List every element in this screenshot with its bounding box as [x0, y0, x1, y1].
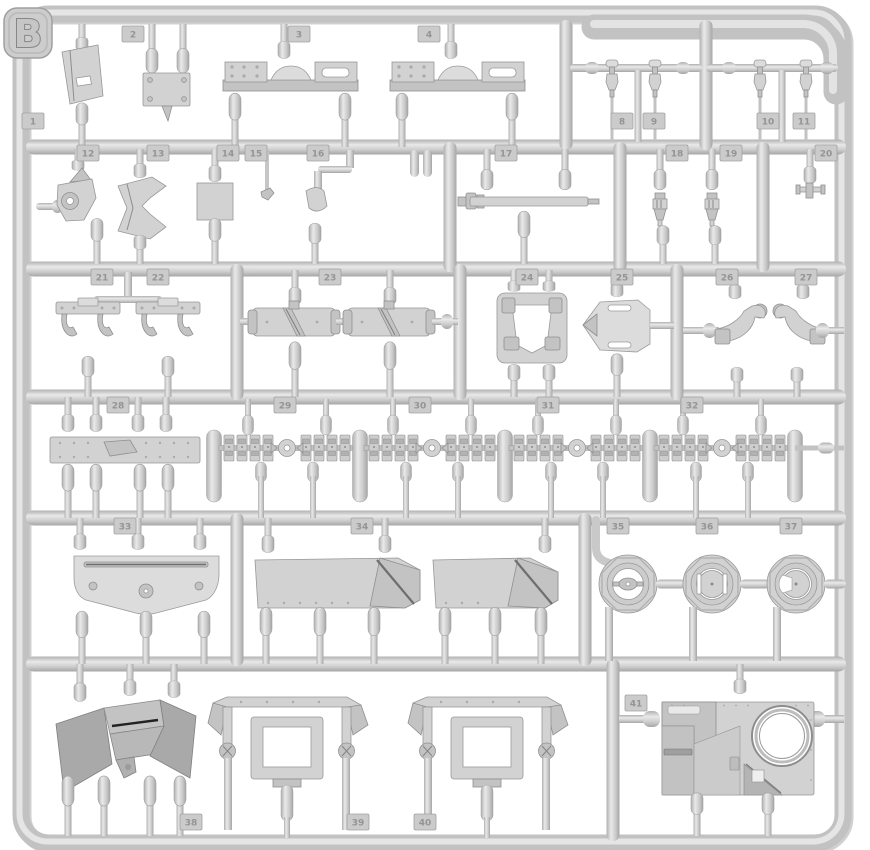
- spare-gate: [423, 150, 432, 177]
- track-link-runs: [207, 399, 845, 518]
- part-number-tab: 3: [288, 26, 310, 42]
- svg-text:17: 17: [500, 150, 513, 160]
- part-angle-clamp: [118, 149, 166, 264]
- svg-text:39: 39: [352, 819, 365, 829]
- part-fender-panel-1: [255, 518, 420, 664]
- svg-text:20: 20: [820, 150, 833, 160]
- part-hinge-brackets: [56, 272, 200, 397]
- svg-text:27: 27: [800, 274, 813, 284]
- part-lifting-hook: [649, 60, 661, 97]
- part-number-tab: 40: [414, 814, 436, 830]
- part-number-tab: 38: [180, 814, 202, 830]
- svg-text:4: 4: [426, 31, 432, 41]
- svg-text:21: 21: [96, 274, 109, 284]
- part-number-tab: 25: [611, 269, 633, 285]
- part-number-tab: 27: [795, 269, 817, 285]
- part-crane-brackets: [683, 270, 844, 397]
- part-seat-frame: [497, 270, 567, 397]
- sprue-letter: B: [14, 12, 43, 56]
- part-number-tab: 21: [91, 269, 113, 285]
- part-track-run: [654, 399, 790, 518]
- part-bolted-box: [143, 24, 190, 121]
- part-number-tab: 23: [319, 269, 341, 285]
- part-engine-mount-beam-1: [223, 62, 358, 91]
- svg-text:26: 26: [721, 274, 734, 284]
- part-number-tab: 9: [643, 113, 665, 129]
- hook-pin-cell-1: [570, 60, 702, 142]
- part-number-tab: 28: [107, 397, 129, 413]
- part-square-plate: [197, 149, 233, 264]
- part-round-hatch-2: [683, 555, 741, 613]
- part-mufflers: [240, 270, 458, 397]
- svg-text:1: 1: [30, 118, 36, 128]
- part-track-run: [509, 399, 645, 518]
- part-wheel-arch-1: [208, 697, 368, 838]
- part-lifting-hook: [800, 60, 812, 97]
- part-fender-strip: [50, 397, 200, 518]
- svg-text:24: 24: [521, 274, 534, 284]
- svg-text:41: 41: [630, 700, 643, 710]
- svg-text:3: 3: [296, 31, 302, 41]
- part-lifting-hook: [754, 60, 766, 97]
- part-number-tab: 37: [780, 518, 802, 534]
- part-number-tab: 35: [607, 518, 629, 534]
- part-angled-bracket-plate: [62, 24, 103, 147]
- part-periscope-1: [653, 149, 669, 264]
- sprue-frame-b: B 12348910111213141516171819202122232425…: [0, 0, 870, 850]
- part-rounded-lever: [306, 150, 354, 264]
- part-number-tab: 24: [516, 269, 538, 285]
- svg-text:33: 33: [119, 523, 132, 533]
- round-hatches: [596, 520, 846, 661]
- svg-text:31: 31: [542, 402, 555, 412]
- part-number-tab: 36: [696, 518, 718, 534]
- part-lifting-hook: [606, 60, 618, 97]
- part-number-tab: 30: [409, 397, 431, 413]
- part-number-tab: 31: [537, 397, 559, 413]
- svg-text:18: 18: [671, 150, 684, 160]
- part-number-tab: 19: [720, 145, 742, 161]
- part-number-tab: 12: [77, 145, 99, 161]
- svg-text:22: 22: [152, 274, 165, 284]
- part-periscope-2: [705, 149, 721, 264]
- svg-text:32: 32: [686, 402, 699, 412]
- svg-text:10: 10: [762, 118, 775, 128]
- part-round-hatch-1: [599, 555, 657, 613]
- part-number-tab: 15: [245, 145, 267, 161]
- sprue-photo: B 12348910111213141516171819202122232425…: [0, 0, 870, 850]
- spare-gate: [410, 150, 419, 177]
- svg-text:13: 13: [152, 150, 165, 160]
- svg-text:35: 35: [612, 523, 625, 533]
- part-number-tab: 1: [22, 113, 44, 129]
- svg-text:15: 15: [250, 150, 263, 160]
- svg-text:34: 34: [356, 523, 369, 533]
- part-gun-barrel-rod: [458, 149, 599, 264]
- part-number-tab: 39: [347, 814, 369, 830]
- svg-text:38: 38: [185, 819, 198, 829]
- svg-text:12: 12: [82, 150, 95, 160]
- svg-text:8: 8: [619, 118, 625, 128]
- part-number-tab: 4: [418, 26, 440, 42]
- part-number-tab: 8: [611, 113, 633, 129]
- svg-text:16: 16: [312, 150, 325, 160]
- part-round-hatch-3: [767, 555, 825, 613]
- part-track-run: [364, 399, 500, 518]
- part-number-tab: 16: [307, 145, 329, 161]
- part-number-tab: 32: [681, 397, 703, 413]
- svg-text:19: 19: [725, 150, 738, 160]
- part-number-tab: 2: [122, 26, 144, 42]
- part-number-tab: 26: [716, 269, 738, 285]
- part-number-tab: 11: [793, 113, 815, 129]
- svg-text:40: 40: [419, 819, 432, 829]
- svg-text:11: 11: [798, 118, 811, 128]
- svg-text:23: 23: [324, 274, 337, 284]
- part-number-tab: 17: [495, 145, 517, 161]
- part-number-tab: 34: [351, 518, 373, 534]
- part-fender-panel-2: [433, 518, 558, 664]
- part-number-tab: 10: [757, 113, 779, 129]
- part-number-tab: 33: [114, 518, 136, 534]
- svg-text:2: 2: [130, 31, 136, 41]
- svg-text:29: 29: [279, 402, 292, 412]
- hook-pin-cell-2: [706, 60, 838, 142]
- svg-text:25: 25: [616, 274, 629, 284]
- part-number-tab: 41: [625, 695, 647, 711]
- svg-text:30: 30: [414, 402, 427, 412]
- part-number-tab: 14: [217, 145, 239, 161]
- svg-text:37: 37: [785, 523, 798, 533]
- part-track-run: [219, 399, 355, 518]
- part-number-tab: 20: [815, 145, 837, 161]
- part-hull-glacis: [74, 518, 219, 664]
- part-gun-shield: [56, 664, 196, 836]
- part-funnel-bracket: [36, 149, 103, 264]
- part-number-tab: 29: [274, 397, 296, 413]
- part-number-tab: 13: [147, 145, 169, 161]
- svg-text:36: 36: [701, 523, 714, 533]
- part-hex-plate: [583, 270, 674, 397]
- svg-text:9: 9: [651, 118, 657, 128]
- part-number-tab: 22: [147, 269, 169, 285]
- svg-text:28: 28: [112, 402, 125, 412]
- part-engine-mount-beam-2: [390, 62, 525, 91]
- svg-text:14: 14: [222, 150, 235, 160]
- part-number-tab: 18: [666, 145, 688, 161]
- part-turret-roof: [619, 664, 844, 836]
- sprue-letter-badge: B: [4, 8, 52, 58]
